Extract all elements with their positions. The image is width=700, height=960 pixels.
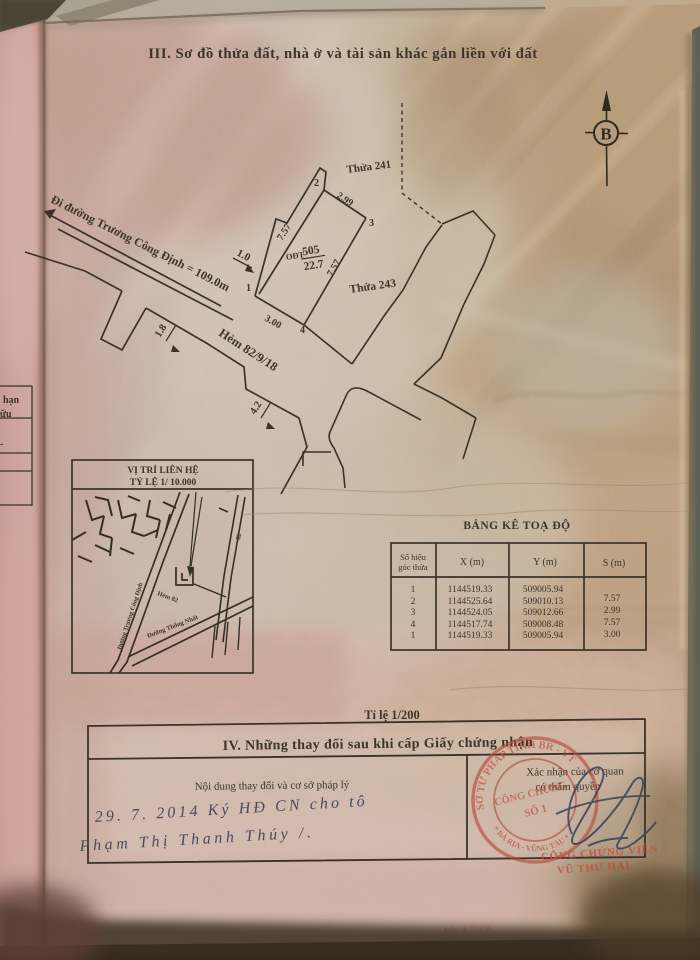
svg-text:1144519.33: 1144519.33 (448, 631, 493, 641)
svg-text:1: 1 (411, 631, 416, 641)
svg-text:B: B (600, 125, 611, 144)
svg-text:BẢNG KÊ TOẠ ĐỘ: BẢNG KÊ TOẠ ĐỘ (463, 518, 570, 532)
svg-text:1144525.64: 1144525.64 (448, 597, 493, 607)
svg-text:7.57: 7.57 (604, 594, 621, 604)
svg-text:Tỉ lệ 1/200: Tỉ lệ 1/200 (364, 708, 420, 722)
svg-text:Y (m): Y (m) (533, 557, 557, 568)
svg-text:S (m): S (m) (603, 558, 626, 569)
svg-text:X (m): X (m) (460, 557, 484, 568)
svg-text:Số hiệu: Số hiệu (400, 552, 426, 562)
svg-text:509005.94: 509005.94 (523, 631, 564, 641)
svg-text:-: - (0, 439, 3, 450)
svg-text:1144524.05: 1144524.05 (448, 608, 493, 618)
svg-text:3: 3 (369, 218, 374, 229)
svg-text:Nội dung thay đổi và cơ sở phá: Nội dung thay đổi và cơ sở pháp lý (195, 779, 350, 793)
svg-text:1144517.74: 1144517.74 (448, 620, 493, 630)
svg-text:1144519.33: 1144519.33 (448, 585, 493, 595)
svg-text:4: 4 (411, 620, 416, 630)
svg-text:3.00: 3.00 (604, 630, 621, 640)
svg-text:3: 3 (411, 608, 416, 618)
svg-text:III. Sơ đồ thửa đất, nhà ở và: III. Sơ đồ thửa đất, nhà ở và tài sản kh… (148, 46, 537, 62)
svg-text:4: 4 (300, 325, 305, 336)
svg-text:1: 1 (246, 283, 251, 294)
svg-text:2.99: 2.99 (604, 606, 621, 616)
svg-text:góc thửa: góc thửa (398, 562, 428, 572)
svg-text:2: 2 (314, 178, 319, 189)
svg-text:509010.13: 509010.13 (523, 597, 564, 607)
svg-text:509012.66: 509012.66 (523, 608, 564, 618)
svg-text:2: 2 (411, 597, 416, 607)
svg-text:Xác nhận của cơ quan: Xác nhận của cơ quan (526, 765, 624, 778)
svg-text:1: 1 (411, 585, 416, 595)
svg-text:509008.48: 509008.48 (523, 620, 564, 630)
svg-text:509005.94: 509005.94 (523, 585, 564, 595)
svg-text:7.57: 7.57 (604, 618, 621, 628)
svg-text:hạn: hạn (3, 395, 20, 406)
svg-text:ữu: ữu (0, 409, 12, 420)
